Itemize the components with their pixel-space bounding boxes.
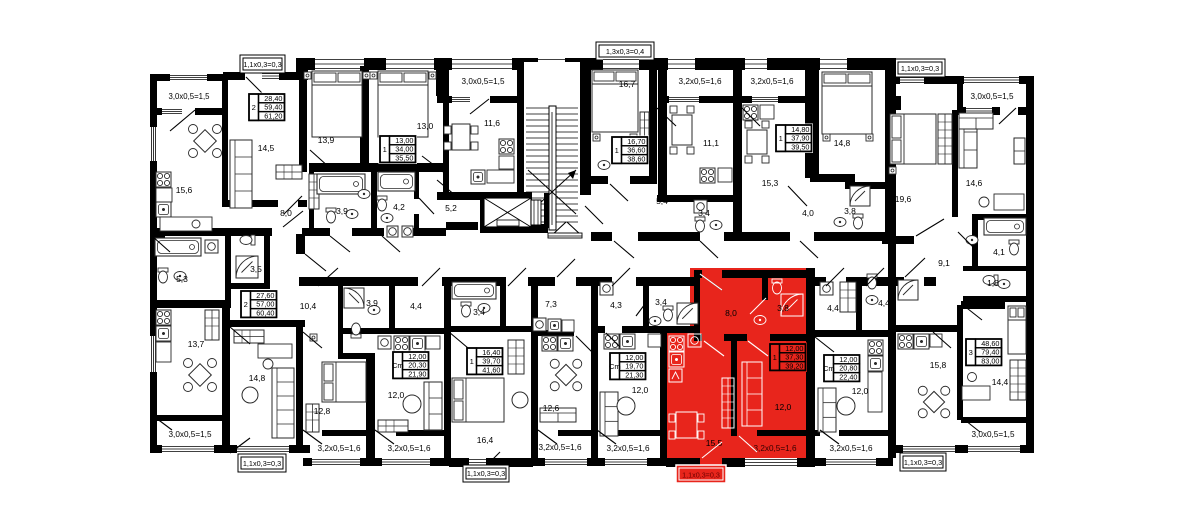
svg-text:20,30: 20,30	[408, 361, 426, 370]
svg-text:16,4: 16,4	[477, 435, 494, 445]
svg-text:1,1x0,3=0,3: 1,1x0,3=0,3	[243, 60, 281, 69]
svg-text:12,00: 12,00	[408, 352, 426, 361]
svg-text:8,0: 8,0	[280, 208, 292, 218]
svg-text:1,1x0,3=0,3: 1,1x0,3=0,3	[904, 458, 942, 467]
svg-text:34,00: 34,00	[395, 145, 413, 154]
svg-text:1,1x0,3=0,3: 1,1x0,3=0,3	[467, 469, 505, 478]
svg-text:35,50: 35,50	[395, 153, 413, 162]
svg-text:15,8: 15,8	[930, 360, 947, 370]
svg-text:22,40: 22,40	[839, 372, 857, 381]
svg-text:21,30: 21,30	[625, 370, 643, 379]
svg-text:3,8: 3,8	[844, 206, 856, 216]
svg-text:13,7: 13,7	[188, 339, 205, 349]
svg-text:59,40: 59,40	[264, 103, 282, 112]
svg-text:1: 1	[615, 146, 619, 155]
svg-text:3,2x0,5=1,6: 3,2x0,5=1,6	[753, 444, 796, 453]
svg-text:15,3: 15,3	[762, 178, 779, 188]
svg-text:57,00: 57,00	[256, 300, 274, 309]
svg-text:36,60: 36,60	[627, 146, 645, 155]
svg-text:3,2x0,5=1,6: 3,2x0,5=1,6	[678, 77, 721, 86]
svg-text:4,2: 4,2	[393, 202, 405, 212]
svg-text:19,6: 19,6	[895, 194, 912, 204]
svg-text:1: 1	[773, 353, 777, 362]
svg-text:5,4: 5,4	[656, 196, 668, 206]
svg-text:13,00: 13,00	[395, 136, 413, 145]
svg-text:14,8: 14,8	[249, 373, 266, 383]
svg-text:3,9: 3,9	[336, 206, 348, 216]
svg-text:1,1x0,3=0,3: 1,1x0,3=0,3	[243, 459, 281, 468]
svg-text:14,8: 14,8	[834, 138, 851, 148]
svg-text:16,40: 16,40	[482, 348, 500, 357]
svg-text:1: 1	[470, 357, 474, 366]
svg-text:2: 2	[244, 300, 248, 309]
svg-text:4,4: 4,4	[878, 298, 890, 308]
svg-text:37,30: 37,30	[785, 353, 803, 362]
svg-text:12,0: 12,0	[388, 390, 405, 400]
svg-text:12,00: 12,00	[785, 344, 803, 353]
svg-text:2: 2	[252, 103, 256, 112]
svg-text:4,4: 4,4	[410, 301, 422, 311]
svg-text:79,40: 79,40	[981, 348, 999, 357]
svg-text:12,00: 12,00	[625, 353, 643, 362]
svg-text:3,0x0,5=1,5: 3,0x0,5=1,5	[169, 92, 211, 101]
svg-text:27,60: 27,60	[256, 291, 274, 300]
svg-text:1,1x0,3=0,3: 1,1x0,3=0,3	[682, 471, 720, 480]
svg-text:3,8: 3,8	[777, 303, 789, 313]
svg-text:3: 3	[969, 348, 973, 357]
svg-text:3,2x0,5=1,6: 3,2x0,5=1,6	[606, 444, 649, 453]
svg-text:8,0: 8,0	[725, 308, 737, 318]
svg-text:3,5: 3,5	[250, 264, 262, 274]
svg-text:13,9: 13,9	[318, 135, 335, 145]
svg-text:14,6: 14,6	[966, 178, 983, 188]
svg-text:19,70: 19,70	[625, 362, 643, 371]
svg-text:21,90: 21,90	[408, 369, 426, 378]
svg-text:28,40: 28,40	[264, 94, 282, 103]
svg-text:1,8: 1,8	[987, 278, 999, 288]
svg-text:41,60: 41,60	[482, 365, 500, 374]
svg-text:37,90: 37,90	[791, 134, 809, 143]
svg-text:1,1x0,3=0,3: 1,1x0,3=0,3	[901, 64, 939, 73]
svg-text:48,60: 48,60	[981, 339, 999, 348]
svg-text:1,3x0,3=0,4: 1,3x0,3=0,4	[606, 47, 644, 56]
svg-text:3,4: 3,4	[698, 208, 710, 218]
svg-text:12,8: 12,8	[314, 406, 331, 416]
svg-text:3,2x0,5=1,6: 3,2x0,5=1,6	[538, 443, 581, 452]
svg-text:1: 1	[383, 145, 387, 154]
svg-text:12,0: 12,0	[852, 386, 869, 396]
svg-text:12,0: 12,0	[775, 402, 792, 412]
svg-text:3,2x0,5=1,6: 3,2x0,5=1,6	[829, 444, 872, 453]
svg-text:3,2x0,5=1,6: 3,2x0,5=1,6	[387, 444, 430, 453]
svg-text:13,0: 13,0	[417, 121, 434, 131]
svg-text:60,40: 60,40	[256, 308, 274, 317]
svg-text:4,0: 4,0	[802, 208, 814, 218]
svg-text:39,20: 39,20	[785, 361, 803, 370]
svg-text:11,6: 11,6	[484, 118, 500, 128]
svg-text:3,0x0,5=1,5: 3,0x0,5=1,5	[971, 430, 1014, 439]
svg-text:16,70: 16,70	[627, 137, 645, 146]
svg-text:3,2x0,5=1,6: 3,2x0,5=1,6	[317, 444, 360, 453]
svg-text:14,4: 14,4	[992, 377, 1009, 387]
svg-text:61,20: 61,20	[264, 111, 282, 120]
svg-text:39,70: 39,70	[482, 357, 500, 366]
svg-text:3,0x0,5=1,5: 3,0x0,5=1,5	[970, 92, 1013, 101]
svg-text:1: 1	[779, 134, 783, 143]
svg-text:3,4: 3,4	[655, 297, 667, 307]
svg-text:4,1: 4,1	[993, 247, 1005, 257]
svg-text:5,2: 5,2	[445, 203, 457, 213]
svg-text:3,9: 3,9	[366, 298, 378, 308]
svg-text:10,4: 10,4	[300, 301, 317, 311]
svg-text:39,50: 39,50	[791, 142, 809, 151]
svg-text:4,4: 4,4	[827, 303, 839, 313]
svg-text:14,80: 14,80	[791, 125, 809, 134]
svg-text:38,60: 38,60	[627, 154, 645, 163]
svg-text:3,2x0,5=1,6: 3,2x0,5=1,6	[750, 77, 793, 86]
svg-text:15,6: 15,6	[176, 185, 193, 195]
svg-text:12,0: 12,0	[632, 385, 649, 395]
svg-text:5,3: 5,3	[176, 274, 188, 284]
svg-text:83,00: 83,00	[981, 356, 999, 365]
svg-text:12,00: 12,00	[839, 355, 857, 364]
svg-text:4,3: 4,3	[610, 300, 622, 310]
svg-text:9,1: 9,1	[938, 258, 950, 268]
svg-text:3,0x0,5=1,5: 3,0x0,5=1,5	[461, 77, 504, 86]
svg-text:3,0x0,5=1,5: 3,0x0,5=1,5	[168, 430, 211, 439]
svg-text:12,6: 12,6	[543, 403, 560, 413]
svg-text:3,4: 3,4	[473, 307, 485, 317]
svg-text:14,5: 14,5	[258, 143, 275, 153]
svg-text:16,7: 16,7	[619, 79, 636, 89]
svg-text:7,3: 7,3	[545, 299, 557, 309]
svg-text:20,80: 20,80	[839, 364, 857, 373]
svg-text:11,1: 11,1	[703, 138, 719, 148]
